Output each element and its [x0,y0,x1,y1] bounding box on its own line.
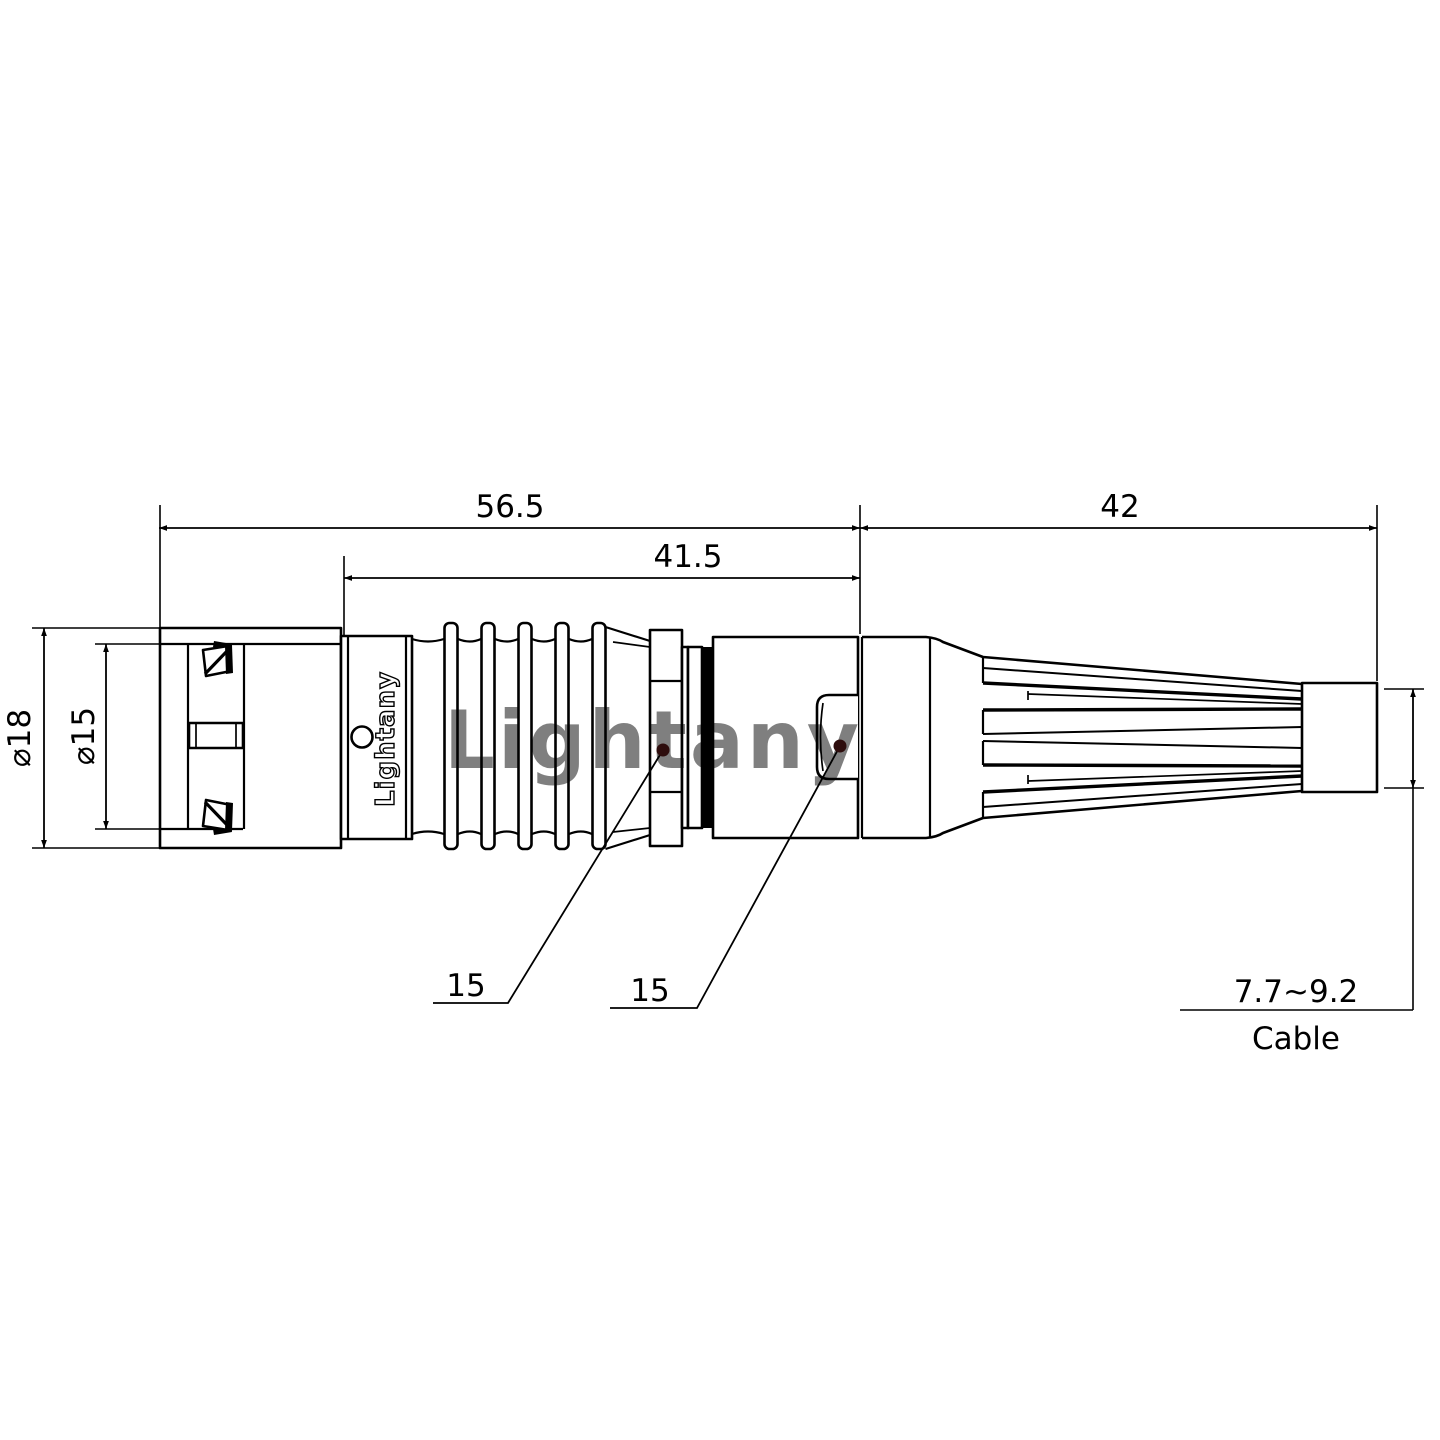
leader-nut-flat [433,750,663,1003]
leader-dot-nut [657,744,670,757]
dim-body-length: 41.5 [653,539,722,575]
watermark-text: Lightany [444,694,862,787]
dim-outer-diameter: ⌀18 [2,709,38,767]
dim-overall-length: 56.5 [475,489,544,525]
strain-relief-boot [862,637,1302,838]
leader-dot-shell [834,740,847,753]
cable-label: Cable [1252,1021,1340,1057]
drawing-page: Lightany [0,0,1440,1440]
dim-inner-diameter: ⌀15 [66,707,102,765]
shell-dimple [352,727,373,748]
callout-shell-flat: 15 [630,973,669,1009]
key-slot [189,723,243,748]
logo-text: Lightany [371,671,401,807]
dim-boot-length: 42 [1100,489,1139,525]
cable-range-label: 7.7~9.2 [1234,974,1359,1010]
grip-shell: Lightany [341,636,412,839]
callout-nut-flat: 15 [446,968,485,1004]
front-nut [160,628,341,848]
cable-exit-tip [1302,683,1377,792]
connector-technical-drawing: Lightany [0,0,1440,1440]
